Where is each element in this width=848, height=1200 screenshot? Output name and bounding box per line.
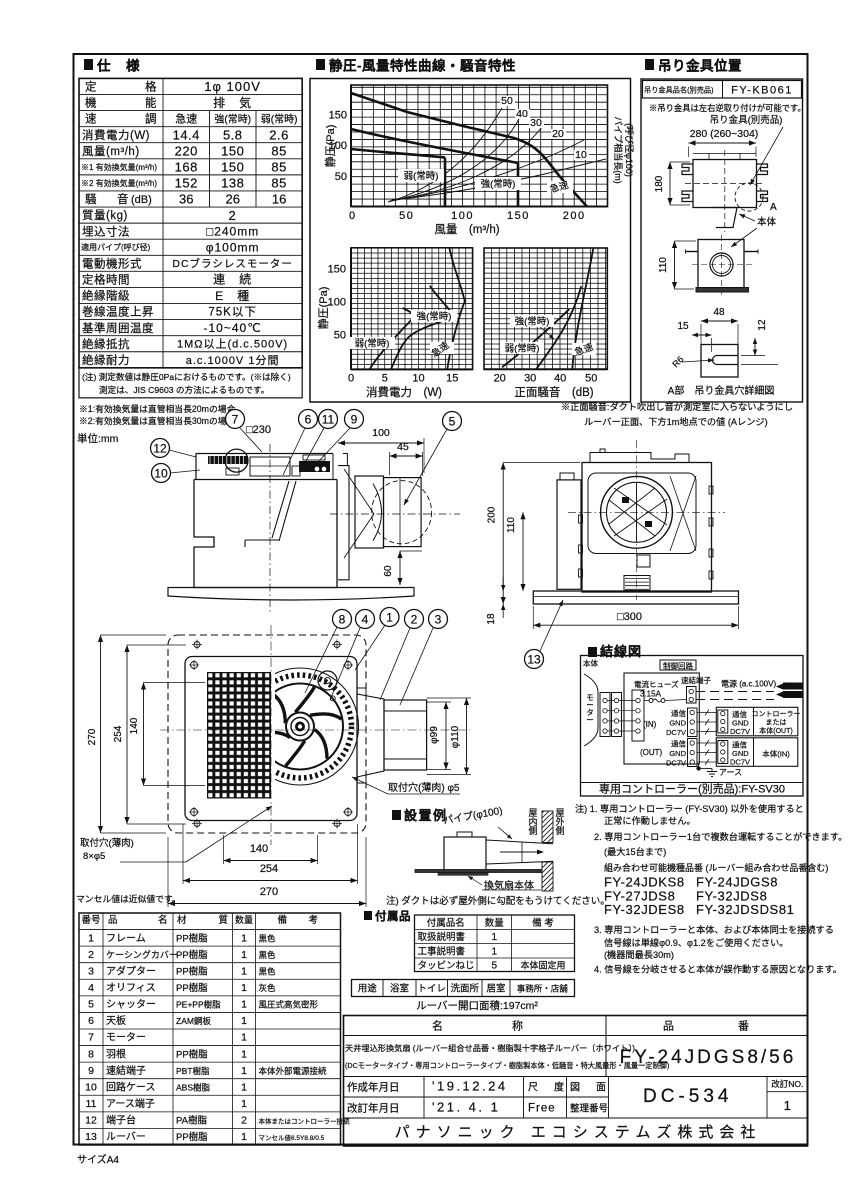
svg-text:50: 50 [501, 95, 513, 107]
svg-text:数量: 数量 [235, 914, 253, 925]
svg-text:消費電力(W): 消費電力(W) [82, 128, 150, 142]
svg-text:4: 4 [88, 982, 94, 994]
svg-text:称: 称 [512, 1019, 523, 1033]
svg-text:5: 5 [382, 373, 388, 385]
svg-text:質: 質 [219, 914, 229, 926]
svg-text:吊り金具位置: 吊り金具位置 [658, 58, 742, 74]
svg-text:適用パイプ(呼び径): 適用パイプ(呼び径) [81, 242, 151, 252]
svg-text:電源 (a.c.100V): 電源 (a.c.100V) [721, 680, 776, 689]
svg-text:12: 12 [757, 319, 768, 331]
svg-text:φ100mm: φ100mm [206, 241, 260, 255]
svg-text:質量(kg): 質量(kg) [82, 208, 128, 222]
svg-text:速結端子: 速結端子 [681, 675, 711, 685]
svg-text:PP樹脂: PP樹脂 [176, 949, 208, 961]
svg-text:側: 側 [555, 825, 564, 836]
svg-text:11: 11 [86, 1098, 97, 1110]
svg-text:ー: ー [586, 716, 594, 725]
svg-text:コントローラー: コントローラー [752, 710, 801, 718]
svg-text:風量(m³/h): 風量(m³/h) [82, 145, 140, 158]
svg-text:調: 調 [145, 112, 157, 126]
svg-text:強(常時): 強(常時) [214, 113, 251, 126]
svg-text:マンセル値6.5Y8.8/0.5: マンセル値6.5Y8.8/0.5 [259, 1133, 325, 1142]
svg-text:機: 機 [85, 96, 97, 110]
svg-text:2: 2 [241, 1115, 247, 1127]
svg-text:254: 254 [260, 863, 278, 875]
svg-text:5.8: 5.8 [223, 127, 243, 142]
svg-text:端子台: 端子台 [106, 1114, 136, 1127]
svg-text:254: 254 [113, 725, 124, 742]
svg-text:定: 定 [85, 80, 97, 94]
svg-text:シャッター: シャッター [106, 999, 156, 1011]
svg-text:電流ヒューズ: 電流ヒューズ [634, 679, 679, 689]
svg-text:45: 45 [397, 441, 409, 453]
svg-text:60: 60 [383, 565, 394, 577]
svg-text:A: A [770, 202, 777, 213]
svg-text:PP樹脂: PP樹脂 [176, 965, 208, 977]
svg-text:アダプター: アダプター [106, 964, 156, 977]
svg-text:本体: 本体 [757, 216, 777, 228]
svg-text:5: 5 [88, 999, 94, 1011]
svg-text:吊り金具(別売品): 吊り金具(別売品) [710, 114, 783, 126]
svg-text:PE+PP樹脂: PE+PP樹脂 [176, 1000, 221, 1010]
svg-text:1: 1 [88, 932, 94, 944]
svg-text:85: 85 [271, 176, 286, 191]
svg-text:3. 専用コントローラーと本体、および本体同士を接続する: 3. 専用コントローラーと本体、および本体同士を接続する [594, 924, 834, 935]
svg-text:パイプ相当長(m): パイプ相当長(m) [613, 116, 624, 184]
svg-text:測定は、JIS C9603 の方法によるものです。: 測定は、JIS C9603 の方法によるものです。 [99, 384, 269, 395]
svg-text:100: 100 [451, 210, 474, 222]
svg-text:吊り金具品名(別売品): 吊り金具品名(別売品) [644, 86, 713, 95]
svg-text:パナソニック エコシステムズ株式会社: パナソニック エコシステムズ株式会社 [395, 1124, 762, 1141]
svg-text:定格時間: 定格時間 [82, 273, 130, 287]
svg-text:GND: GND [669, 749, 686, 758]
svg-text:備 考: 備 考 [532, 917, 554, 929]
svg-text:数量: 数量 [485, 917, 505, 929]
svg-text:風量 (m³/h): 風量 (m³/h) [434, 223, 499, 236]
svg-text:通信: 通信 [671, 708, 686, 718]
svg-text:1: 1 [241, 1098, 247, 1110]
svg-text:15: 15 [677, 321, 689, 332]
svg-text:5: 5 [449, 414, 456, 428]
svg-text:2: 2 [88, 949, 94, 961]
svg-text:基準周囲温度: 基準周囲温度 [82, 321, 154, 335]
svg-text:14.4: 14.4 [173, 127, 200, 142]
svg-text:110: 110 [658, 257, 669, 273]
svg-text:黒色: 黒色 [259, 950, 277, 960]
svg-text:付属品: 付属品 [375, 909, 411, 923]
svg-text:150: 150 [328, 264, 346, 276]
svg-text:DC-534: DC-534 [643, 1086, 732, 1107]
svg-text:巻線温度上昇: 巻線温度上昇 [82, 305, 154, 319]
svg-text:φ99: φ99 [429, 726, 440, 744]
svg-text:DC7V: DC7V [666, 759, 686, 768]
svg-text:'21. 4. 1: '21. 4. 1 [432, 1099, 500, 1114]
svg-text:排 気: 排 気 [213, 95, 252, 110]
svg-text:9: 9 [88, 1065, 94, 1077]
svg-text:110: 110 [506, 517, 517, 533]
svg-text:※1:有効換気量は直管相当長20mの場合: ※1:有効換気量は直管相当長20mの場合 [79, 403, 236, 414]
svg-text:番号: 番号 [81, 914, 100, 926]
svg-text:5: 5 [491, 960, 497, 971]
svg-text:絶縁耐力: 絶縁耐力 [82, 353, 130, 367]
svg-text:10: 10 [85, 1081, 97, 1093]
svg-text:通信: 通信 [732, 740, 747, 750]
svg-text:200: 200 [563, 210, 586, 222]
svg-text:11: 11 [322, 412, 335, 426]
svg-text:8: 8 [339, 612, 346, 626]
svg-text:改訂年月日: 改訂年月日 [347, 1101, 400, 1114]
svg-text:PP樹脂: PP樹脂 [176, 1131, 208, 1143]
svg-text:(機器間最長30m): (機器間最長30m) [604, 949, 674, 960]
svg-text:設置例: 設置例 [404, 808, 448, 823]
svg-text:タッピンねじ: タッピンねじ [418, 960, 475, 971]
svg-text:PP樹脂: PP樹脂 [176, 932, 208, 944]
svg-text:DCブラシレスモーター: DCブラシレスモーター [172, 257, 292, 270]
svg-text:速結端子: 速結端子 [106, 1064, 146, 1077]
svg-text:□240mm: □240mm [206, 224, 259, 238]
svg-text:10: 10 [412, 373, 424, 385]
svg-text:10: 10 [154, 466, 168, 480]
svg-text:ルーバー正面、下方1m地点での値 (Aレンジ): ルーバー正面、下方1m地点での値 (Aレンジ) [584, 416, 768, 427]
svg-text:36: 36 [179, 192, 193, 207]
svg-text:85: 85 [271, 143, 286, 158]
svg-text:※1 有効換気量(m³/h): ※1 有効換気量(m³/h) [81, 162, 157, 172]
svg-text:側: 側 [528, 825, 537, 836]
svg-text:270: 270 [87, 728, 98, 745]
svg-text:黒色: 黒色 [259, 966, 277, 976]
svg-text:200: 200 [487, 506, 498, 523]
svg-text:モーター: モーター [106, 1032, 146, 1044]
svg-text:注) ダクトは必ず屋外側に勾配をもうけてください。: 注) ダクトは必ず屋外側に勾配をもうけてください。 [386, 895, 610, 907]
svg-text:PA樹脂: PA樹脂 [176, 1115, 207, 1127]
svg-text:1: 1 [241, 1065, 247, 1077]
svg-text:(最大15台まで): (最大15台まで) [604, 846, 666, 857]
svg-text:1: 1 [241, 1015, 247, 1027]
svg-text:Free: Free [528, 1102, 556, 1114]
svg-text:備: 備 [278, 914, 288, 926]
svg-text:-10~40℃: -10~40℃ [204, 321, 262, 335]
svg-text:品: 品 [108, 915, 118, 926]
svg-text:(dB): (dB) [131, 194, 152, 206]
svg-text:結線図: 結線図 [600, 644, 642, 659]
svg-text:速: 速 [85, 113, 97, 126]
svg-text:30: 30 [524, 373, 536, 385]
svg-text:1: 1 [241, 999, 247, 1011]
svg-text:1: 1 [386, 610, 393, 624]
svg-text:ZAM鋼板: ZAM鋼板 [176, 1016, 211, 1026]
svg-text:a.c.1000V 1分間: a.c.1000V 1分間 [186, 354, 280, 367]
svg-text:3: 3 [88, 965, 94, 977]
svg-text:フレーム: フレーム [106, 932, 146, 944]
svg-text:回路ケース: 回路ケース [106, 1080, 156, 1093]
svg-text:付属品名: 付属品名 [427, 917, 465, 929]
svg-text:150: 150 [329, 110, 347, 122]
svg-text:専用コントローラー(別売品):FY-SV30: 専用コントローラー(別売品):FY-SV30 [599, 783, 785, 796]
svg-text:強(常時): 強(常時) [417, 311, 452, 323]
svg-text:13: 13 [527, 652, 541, 666]
svg-text:DC7V: DC7V [730, 758, 750, 767]
svg-text:140: 140 [129, 717, 140, 734]
svg-text:能: 能 [145, 96, 157, 110]
svg-text:弱(常時): 弱(常時) [404, 170, 439, 182]
svg-text:140: 140 [250, 843, 268, 855]
svg-text:電圧側: 電圧側 [784, 682, 802, 690]
svg-text:消費電力 (W): 消費電力 (W) [366, 385, 442, 399]
svg-text:急速: 急速 [175, 112, 197, 126]
svg-text:※吊り金具は左右逆取り付けが可能です。: ※吊り金具は左右逆取り付けが可能です。 [649, 103, 806, 113]
svg-text:風圧式高気密形: 風圧式高気密形 [259, 1000, 319, 1010]
svg-text:用途: 用途 [358, 982, 378, 994]
svg-text:16: 16 [272, 192, 286, 207]
svg-text:48: 48 [713, 307, 725, 318]
svg-text:A部 吊り金具穴詳細図: A部 吊り金具穴詳細図 [668, 384, 775, 397]
svg-text:考: 考 [309, 915, 319, 926]
svg-text:DC7V: DC7V [730, 727, 750, 736]
svg-text:仕 様: 仕 様 [96, 58, 141, 74]
svg-text:220: 220 [175, 143, 198, 158]
svg-text:PP樹脂: PP樹脂 [176, 982, 208, 994]
svg-text:1: 1 [241, 1048, 247, 1060]
svg-text:通信: 通信 [732, 709, 747, 719]
svg-text:度: 度 [554, 1081, 564, 1094]
svg-text:15: 15 [446, 373, 458, 385]
svg-text:2: 2 [411, 612, 418, 626]
svg-text:13: 13 [85, 1131, 97, 1143]
svg-text:※2:有効換気量は直管相当長30mの場合: ※2:有効換気量は直管相当長30mの場合 [79, 415, 236, 426]
svg-text:50: 50 [399, 210, 414, 222]
svg-text:1: 1 [784, 1098, 791, 1113]
svg-text:E 種: E 種 [215, 289, 250, 303]
svg-text:(呼び径φ100): (呼び径φ100) [624, 123, 635, 177]
svg-text:FY-KB061: FY-KB061 [731, 85, 793, 97]
svg-text:ケーシングカバー: ケーシングカバー [106, 949, 178, 960]
svg-text:事務所・店舗: 事務所・店舗 [517, 983, 569, 993]
svg-text:φ110: φ110 [450, 725, 461, 748]
svg-text:150: 150 [221, 160, 244, 175]
svg-text:単位:mm: 単位:mm [77, 432, 119, 445]
svg-text:20: 20 [552, 128, 564, 140]
svg-text:尺: 尺 [528, 1082, 538, 1094]
svg-text:本体またはコントローラー接続: 本体またはコントローラー接続 [259, 1117, 351, 1126]
svg-text:0: 0 [349, 210, 355, 222]
svg-text:168: 168 [175, 160, 198, 175]
svg-text:騒: 騒 [85, 193, 97, 206]
svg-text:本体(IN): 本体(IN) [762, 749, 790, 759]
svg-text:100: 100 [328, 297, 346, 309]
svg-text:1: 1 [241, 1131, 247, 1143]
svg-text:7: 7 [232, 412, 239, 426]
svg-text:静圧-風量特性曲線・騒音特性: 静圧-風量特性曲線・騒音特性 [329, 58, 516, 74]
svg-text:工事説明書: 工事説明書 [418, 945, 466, 957]
svg-text:30: 30 [530, 117, 542, 129]
svg-text:オリフィス: オリフィス [106, 982, 156, 994]
svg-text:50: 50 [585, 373, 597, 385]
svg-text:1: 1 [241, 1032, 247, 1044]
svg-text:サイズA4: サイズA4 [77, 1153, 119, 1166]
svg-text:1φ 100V: 1φ 100V [204, 79, 261, 94]
svg-text:作成年月日: 作成年月日 [347, 1081, 400, 1094]
svg-text:接地側: 接地側 [784, 691, 802, 699]
svg-text:PBT樹脂: PBT樹脂 [176, 1066, 210, 1076]
svg-text:FY-24JDKS8: FY-24JDKS8 [604, 875, 685, 890]
svg-text:静圧(Pa): 静圧(Pa) [316, 287, 330, 330]
svg-text:PP樹脂: PP樹脂 [176, 1048, 208, 1060]
svg-text:天井埋込形換気扇 (ルーバー組合せ品番・樹脂製十字格子ルーバ: 天井埋込形換気扇 (ルーバー組合せ品番・樹脂製十字格子ルーバー〔ホワイト〕) [345, 1043, 635, 1053]
svg-text:152: 152 [175, 176, 198, 191]
svg-text:4. 信号線を分岐させると本体が誤作動する原因となります。: 4. 信号線を分岐させると本体が誤作動する原因となります。 [594, 964, 842, 975]
svg-text:18: 18 [486, 613, 497, 625]
svg-text:格: 格 [145, 80, 157, 94]
svg-text:黒色: 黒色 [259, 933, 277, 943]
svg-text:26: 26 [226, 192, 240, 207]
svg-text:組み合わせ可能機種品番 (ルーバー組み合わせ品番含む): 組み合わせ可能機種品番 (ルーバー組み合わせ品番含む) [604, 862, 828, 873]
svg-text:100: 100 [372, 427, 390, 439]
svg-text:'19.12.24: '19.12.24 [432, 1079, 508, 1094]
svg-text:品: 品 [663, 1020, 674, 1033]
svg-text:強(常時): 強(常時) [481, 178, 516, 190]
svg-text:ABS樹脂: ABS樹脂 [176, 1082, 211, 1092]
svg-text:□300: □300 [617, 611, 642, 623]
svg-text:1: 1 [241, 1081, 247, 1093]
svg-text:弱(常時): 弱(常時) [355, 338, 390, 350]
svg-text:40: 40 [554, 373, 566, 385]
svg-text:180: 180 [654, 175, 665, 192]
svg-text:FY-32JDSDS81: FY-32JDSDS81 [696, 902, 795, 917]
svg-text:138: 138 [221, 176, 244, 191]
svg-text:取付穴(薄肉): 取付穴(薄肉) [80, 837, 134, 849]
svg-text:正面騒音 (dB): 正面騒音 (dB) [514, 385, 593, 399]
svg-text:270: 270 [260, 886, 278, 898]
svg-text:アース: アース [719, 768, 742, 777]
svg-text:1MΩ以上(d.c.500V): 1MΩ以上(d.c.500V) [177, 338, 288, 351]
svg-text:浴室: 浴室 [390, 982, 409, 994]
svg-text:50: 50 [334, 330, 346, 342]
svg-text:7: 7 [88, 1032, 94, 1044]
svg-text:2.6: 2.6 [269, 127, 289, 142]
svg-text:灰色: 灰色 [259, 983, 277, 993]
svg-text:85: 85 [271, 160, 286, 175]
svg-text:番: 番 [738, 1020, 749, 1033]
svg-text:正常に作動しません。: 正常に作動しません。 [604, 815, 696, 826]
svg-text:本体外部電源接続: 本体外部電源接続 [259, 1066, 328, 1076]
svg-text:1: 1 [241, 949, 247, 961]
svg-text:整理番号: 整理番号 [570, 1102, 608, 1114]
svg-text:□230: □230 [246, 424, 271, 436]
svg-text:1: 1 [241, 982, 247, 994]
svg-text:通信: 通信 [671, 739, 686, 749]
svg-text:電動機形式: 電動機形式 [82, 256, 142, 270]
svg-text:150: 150 [507, 210, 530, 222]
svg-text:取付穴(薄肉) φ5: 取付穴(薄肉) φ5 [388, 781, 460, 794]
svg-text:面: 面 [596, 1083, 606, 1094]
svg-text:DC7V: DC7V [666, 728, 686, 737]
svg-text:マンセル値は近似値です。: マンセル値は近似値です。 [76, 893, 181, 904]
svg-text:弱(常時): 弱(常時) [261, 113, 298, 126]
svg-text:連 続: 連 続 [213, 273, 252, 287]
svg-text:FY-24JDGS8: FY-24JDGS8 [696, 875, 778, 890]
svg-text:絶縁抵抗: 絶縁抵抗 [82, 337, 130, 351]
svg-text:1: 1 [241, 932, 247, 944]
svg-text:3: 3 [435, 612, 442, 626]
svg-text:280 (260~304): 280 (260~304) [690, 128, 759, 140]
svg-text:トイレ: トイレ [417, 983, 446, 994]
svg-text:FY-24JDGS8/56: FY-24JDGS8/56 [620, 1047, 797, 1068]
svg-text:1: 1 [491, 946, 497, 957]
svg-text:本体固定用: 本体固定用 [520, 959, 565, 970]
svg-text:取扱説明書: 取扱説明書 [418, 931, 466, 943]
svg-text:静圧(Pa): 静圧(Pa) [323, 125, 337, 168]
svg-text:6: 6 [88, 1015, 94, 1027]
svg-text:3.15A: 3.15A [640, 690, 662, 699]
svg-text:本体(OUT): 本体(OUT) [759, 726, 792, 735]
svg-text:名: 名 [432, 1019, 443, 1033]
svg-text:居室: 居室 [486, 982, 505, 994]
svg-text:名: 名 [158, 914, 168, 926]
svg-text:改訂NO.: 改訂NO. [771, 1079, 803, 1089]
svg-text:0: 0 [348, 373, 354, 385]
svg-text:信号線は単線φ0.9、φ1.2をご使用ください。: 信号線は単線φ0.9、φ1.2をご使用ください。 [604, 937, 788, 948]
svg-text:絶縁階級: 絶縁階級 [82, 289, 130, 303]
svg-text:(IN): (IN) [643, 720, 657, 729]
svg-text:8: 8 [88, 1048, 94, 1060]
svg-text:2. 専用コントローラー1台で複数台運転することができます。: 2. 専用コントローラー1台で複数台運転することができます。 [594, 831, 847, 842]
svg-text:6: 6 [305, 412, 312, 426]
svg-text:羽根: 羽根 [106, 1047, 126, 1060]
svg-text:制御回路: 制御回路 [663, 661, 693, 671]
svg-text:図: 図 [570, 1082, 580, 1094]
svg-text:GND: GND [669, 719, 686, 728]
svg-text:12: 12 [153, 441, 167, 455]
svg-text:8×φ5: 8×φ5 [83, 851, 105, 862]
svg-text:4: 4 [362, 612, 369, 626]
svg-text:※2 有効換気量(m³/h): ※2 有効換気量(m³/h) [81, 178, 157, 188]
svg-text:1: 1 [491, 932, 497, 943]
svg-text:75K以下: 75K以下 [208, 306, 256, 319]
svg-text:1: 1 [241, 965, 247, 977]
svg-text:FY-32JDES8: FY-32JDES8 [604, 902, 685, 917]
svg-text:または: または [766, 719, 787, 727]
svg-text:20: 20 [494, 373, 506, 385]
svg-text:12: 12 [85, 1115, 97, 1127]
svg-text:弱(常時): 弱(常時) [505, 343, 540, 355]
svg-text:本体: 本体 [583, 658, 598, 668]
svg-text:注) 1. 専用コントローラー (FY-SV30) 以外を使: 注) 1. 専用コントローラー (FY-SV30) 以外を使用すると [575, 803, 804, 814]
svg-text:(OUT): (OUT) [640, 748, 663, 757]
svg-text:9: 9 [351, 412, 358, 426]
svg-text:ルーバー開口面積:197cm²: ルーバー開口面積:197cm² [416, 999, 538, 1012]
svg-text:ルーバー: ルーバー [106, 1131, 146, 1143]
svg-text:天板: 天板 [106, 1014, 126, 1027]
svg-text:10: 10 [575, 149, 587, 161]
svg-text:150: 150 [221, 143, 244, 158]
svg-text:(注) 測定数値は静圧0Paにおけるものです。(※は除く): (注) 測定数値は静圧0Paにおけるものです。(※は除く) [82, 371, 291, 382]
svg-text:埋込寸法: 埋込寸法 [82, 224, 130, 238]
svg-text:材: 材 [177, 914, 187, 926]
svg-text:音: 音 [117, 192, 129, 206]
svg-text:40: 40 [516, 108, 528, 120]
svg-text:アース端子: アース端子 [106, 1097, 155, 1110]
svg-text:洗面所: 洗面所 [450, 982, 479, 994]
svg-text:50: 50 [335, 171, 347, 183]
svg-text:強(常時): 強(常時) [515, 316, 550, 328]
svg-text:2: 2 [228, 208, 236, 223]
